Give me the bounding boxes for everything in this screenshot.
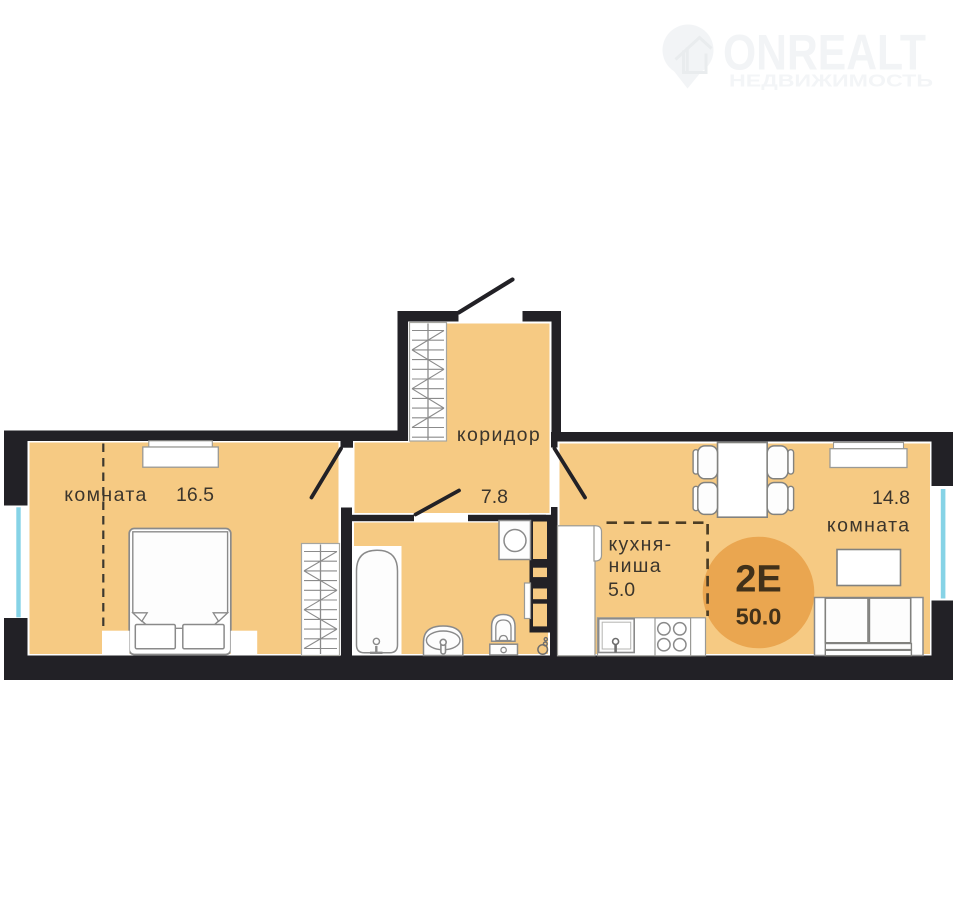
svg-text:коридор: коридор [457, 424, 541, 446]
svg-text:7.8: 7.8 [481, 486, 508, 508]
svg-text:комната: комната [64, 484, 148, 506]
svg-text:ниша: ниша [609, 555, 662, 577]
svg-text:комната: комната [827, 515, 911, 537]
svg-text:50.0: 50.0 [736, 604, 782, 630]
svg-text:кухня-: кухня- [609, 534, 673, 556]
svg-text:14.8: 14.8 [872, 487, 910, 509]
svg-text:16.5: 16.5 [176, 484, 214, 506]
svg-text:5.0: 5.0 [608, 579, 635, 601]
svg-text:2Е: 2Е [735, 559, 781, 601]
svg-text:НЕДВИЖИМОСТЬ: НЕДВИЖИМОСТЬ [729, 71, 933, 91]
